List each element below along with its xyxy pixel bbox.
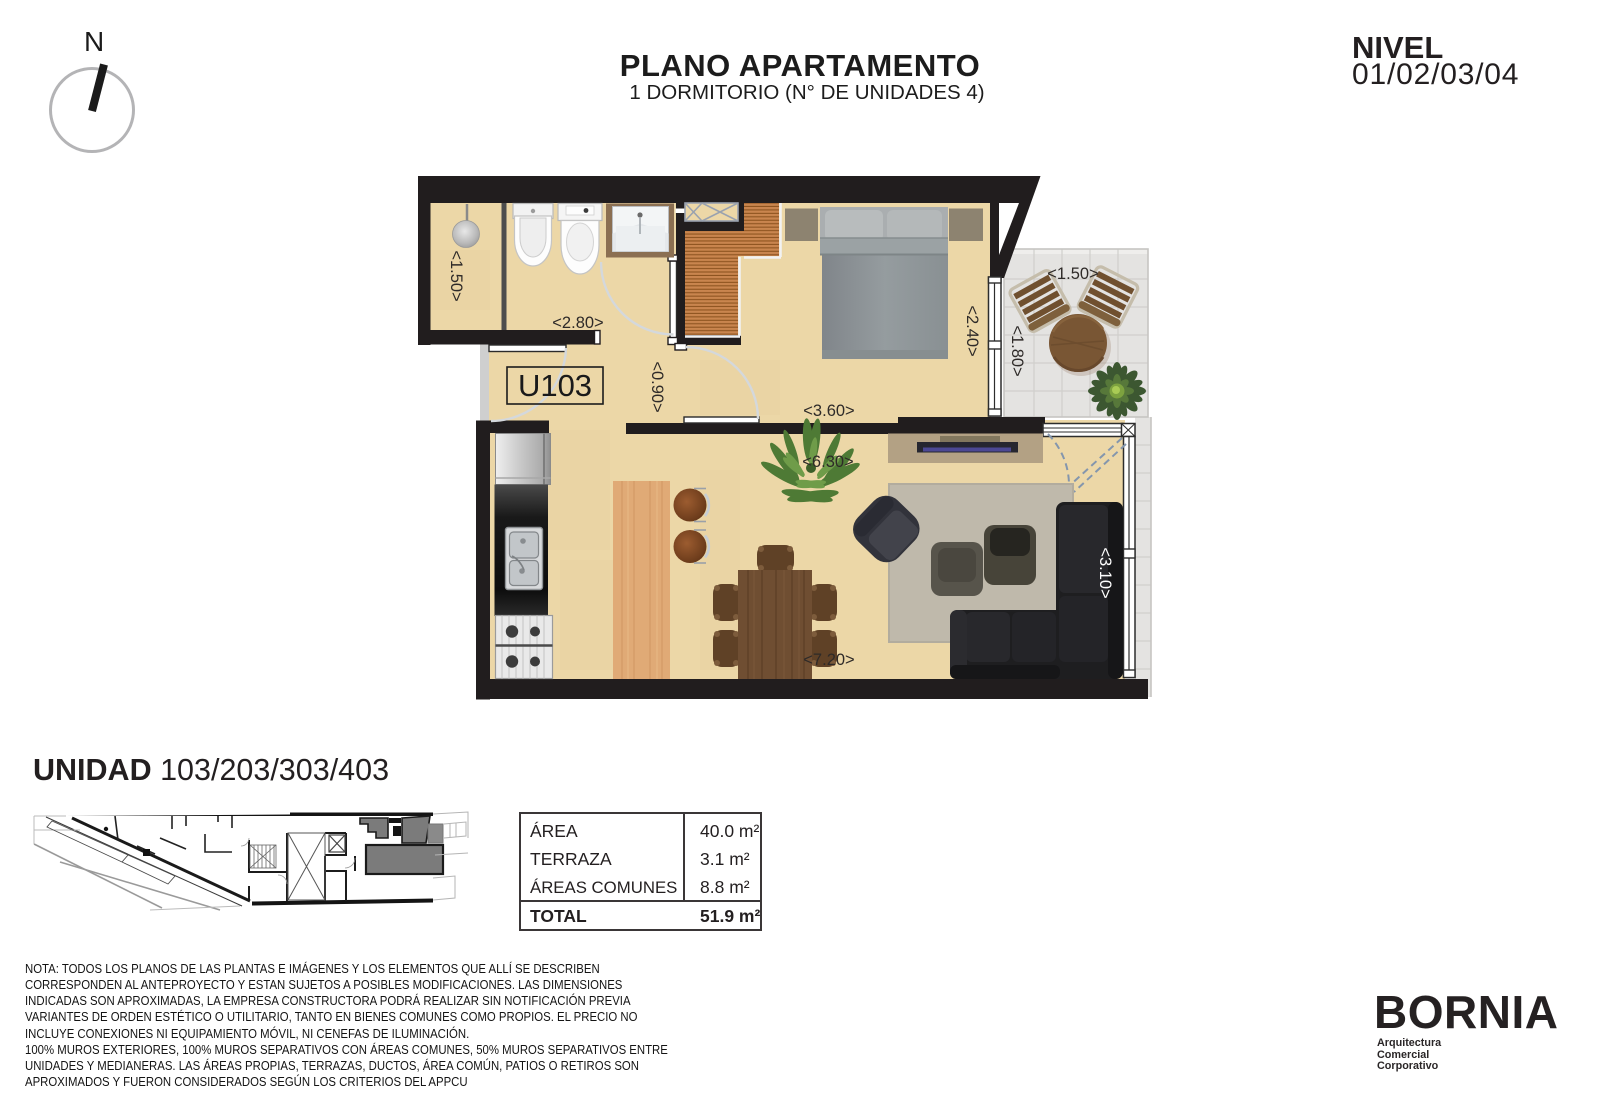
svg-text:<7.20>: <7.20> <box>803 651 854 669</box>
svg-text:<1.50>: <1.50> <box>447 250 465 301</box>
svg-text:<1.80>: <1.80> <box>1008 325 1026 376</box>
svg-text:<6.30>: <6.30> <box>802 453 853 471</box>
svg-text:<3.10>: <3.10> <box>1096 547 1114 598</box>
svg-text:<2.40>: <2.40> <box>963 305 981 356</box>
svg-text:<2.80>: <2.80> <box>552 314 603 332</box>
svg-text:U103: U103 <box>518 368 592 403</box>
svg-text:<0.90>: <0.90> <box>648 361 666 412</box>
svg-text:<3.60>: <3.60> <box>803 402 854 420</box>
svg-text:N: N <box>84 26 104 57</box>
svg-text:<1.50>: <1.50> <box>1047 265 1098 283</box>
